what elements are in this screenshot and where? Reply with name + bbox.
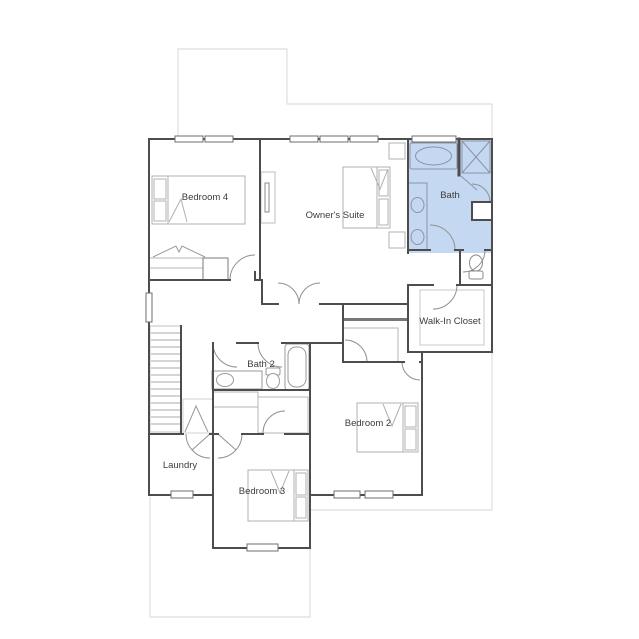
door-bedroom2 [402, 362, 420, 380]
room-label-bath: Bath [440, 190, 460, 201]
window-bedroom2 [334, 491, 360, 498]
door-bedroom2-closet [345, 340, 367, 362]
staircase [150, 326, 181, 432]
room-label-bedroom3: Bedroom 3 [239, 486, 285, 497]
room-label-bedroom4: Bedroom 4 [182, 192, 228, 203]
door-bedroom4 [230, 255, 255, 280]
door-walk-in-closet [433, 285, 457, 309]
art-niche [261, 172, 275, 223]
room-label-walk-in-closet: Walk-In Closet [419, 316, 481, 327]
nightstand [389, 232, 405, 248]
door-bedroom3-closet [263, 411, 285, 433]
window [205, 136, 233, 142]
first-floor-footprint-outline [150, 49, 492, 617]
toilet-bowl [267, 374, 280, 389]
toilet-water-closet [469, 255, 483, 279]
room-label-bath2: Bath 2 [247, 359, 274, 370]
window-stairs [146, 293, 152, 322]
sink [217, 374, 234, 387]
window [175, 136, 203, 142]
window-bath [412, 136, 456, 142]
closet-bedroom4 [150, 246, 228, 280]
hall-closets [183, 392, 308, 433]
floor-plan-canvas: Bedroom 4 Owner's Suite Bath Walk-In Clo… [0, 0, 639, 639]
window-laundry [171, 491, 193, 498]
nightstand [389, 143, 405, 159]
bed-owners-suite [343, 143, 405, 248]
room-label-owners-suite: Owner's Suite [306, 210, 365, 221]
linen-closet [343, 320, 408, 363]
window-bedroom3 [247, 544, 278, 551]
door-laundry-leaf [192, 434, 210, 450]
room-label-laundry: Laundry [163, 460, 198, 471]
double-door-owners-suite-right [299, 283, 320, 304]
door-bedroom3-leaf [218, 434, 236, 450]
window [290, 136, 318, 142]
window-bedroom2 [365, 491, 393, 498]
window [350, 136, 378, 142]
window [320, 136, 348, 142]
room-label-bedroom2: Bedroom 2 [345, 418, 391, 429]
floor-plan: Bedroom 4 Owner's Suite Bath Walk-In Clo… [0, 0, 639, 639]
double-door-owners-suite-left [278, 283, 299, 304]
door-bath2-hall [213, 343, 237, 367]
